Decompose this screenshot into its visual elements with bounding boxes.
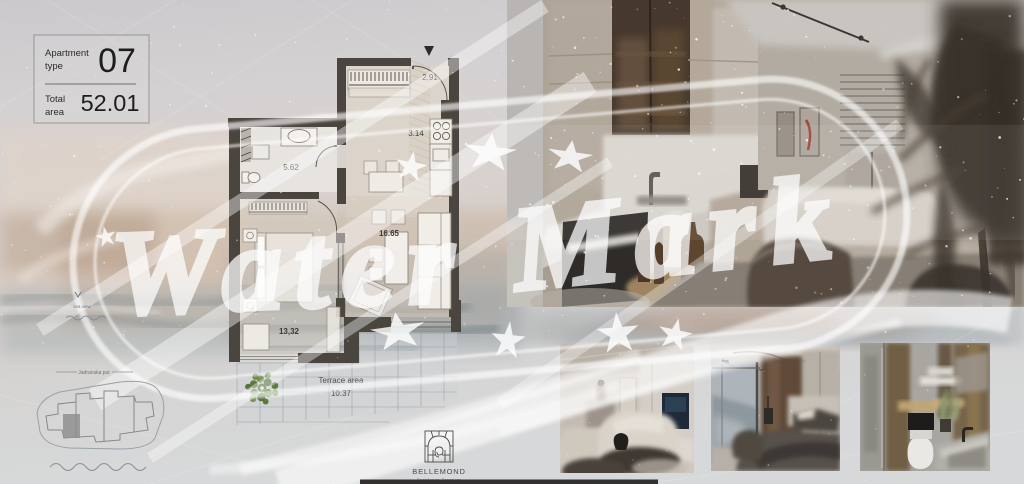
svg-text:Water: Water — [109, 194, 470, 339]
svg-text:BELLEMOND: BELLEMOND — [412, 467, 465, 476]
svg-text:sea view: sea view — [73, 304, 91, 309]
svg-text:area: area — [45, 107, 65, 118]
svg-text:07: 07 — [98, 42, 136, 80]
svg-text:52.01: 52.01 — [81, 90, 140, 116]
svg-text:Apartment: Apartment — [45, 48, 89, 59]
svg-text:Total: Total — [45, 94, 65, 105]
svg-text:type: type — [45, 61, 63, 72]
svg-text:Jadranska put: Jadranska put — [78, 370, 110, 376]
